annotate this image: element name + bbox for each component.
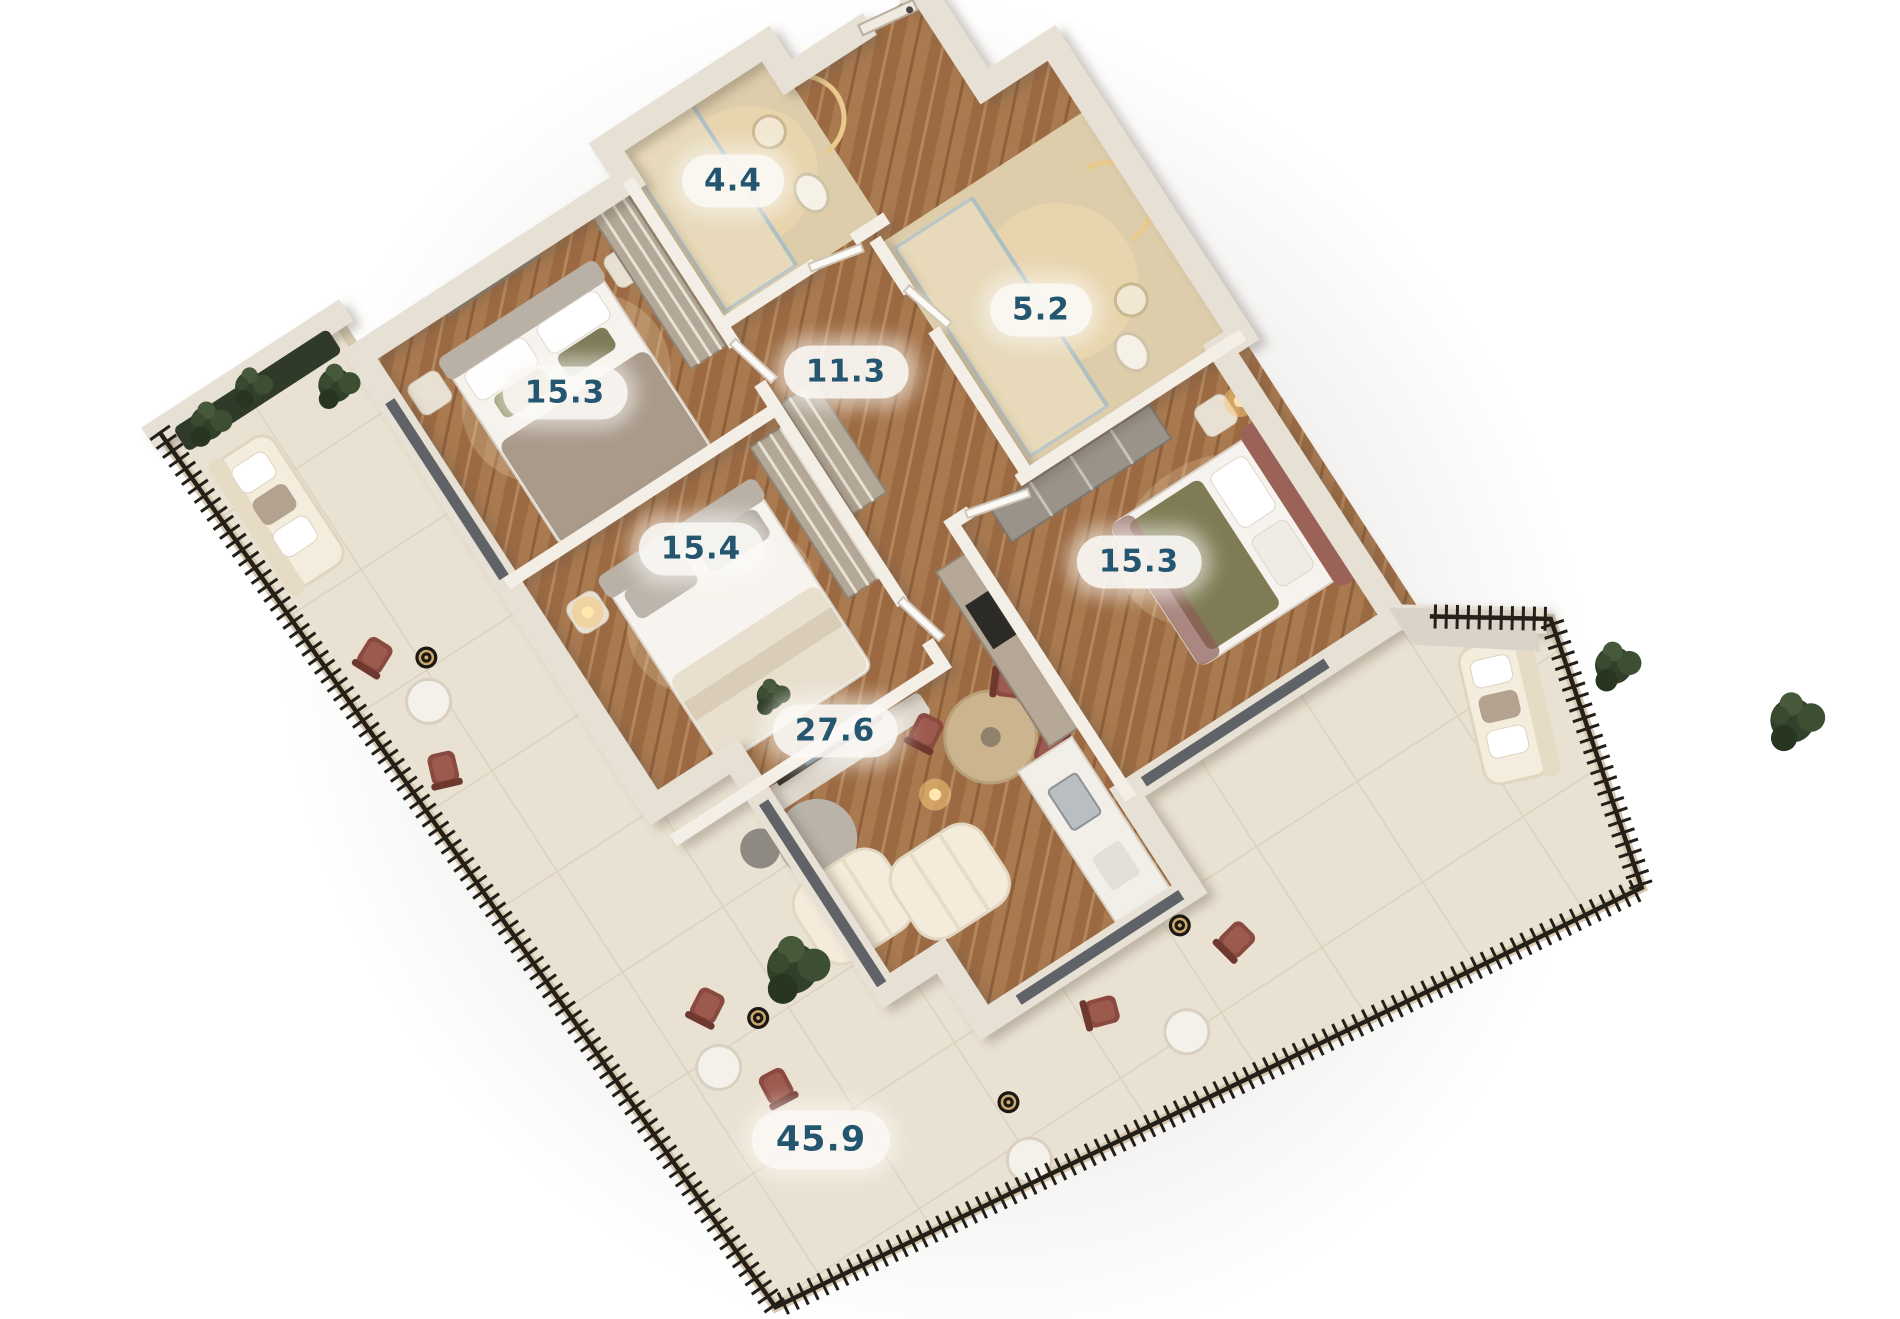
room-area-label-shower-room: 5.2 (990, 284, 1092, 337)
room-area-label-living-room: 27.6 (773, 705, 898, 758)
room-area-label-bathroom-top: 4.4 (682, 155, 784, 208)
room-area-label-bedroom-center: 15.4 (639, 523, 764, 576)
floor-plan-render (0, 0, 1900, 1319)
room-area-label-hallway: 11.3 (784, 346, 909, 399)
room-area-label-bedroom-west: 15.3 (503, 367, 628, 420)
room-area-label-terrace: 45.9 (752, 1111, 890, 1170)
floor-plan-image: 4.4 5.2 11.3 15.3 15.4 15.3 27.6 45.9 (0, 0, 1900, 1319)
room-area-label-bedroom-east: 15.3 (1077, 536, 1202, 589)
